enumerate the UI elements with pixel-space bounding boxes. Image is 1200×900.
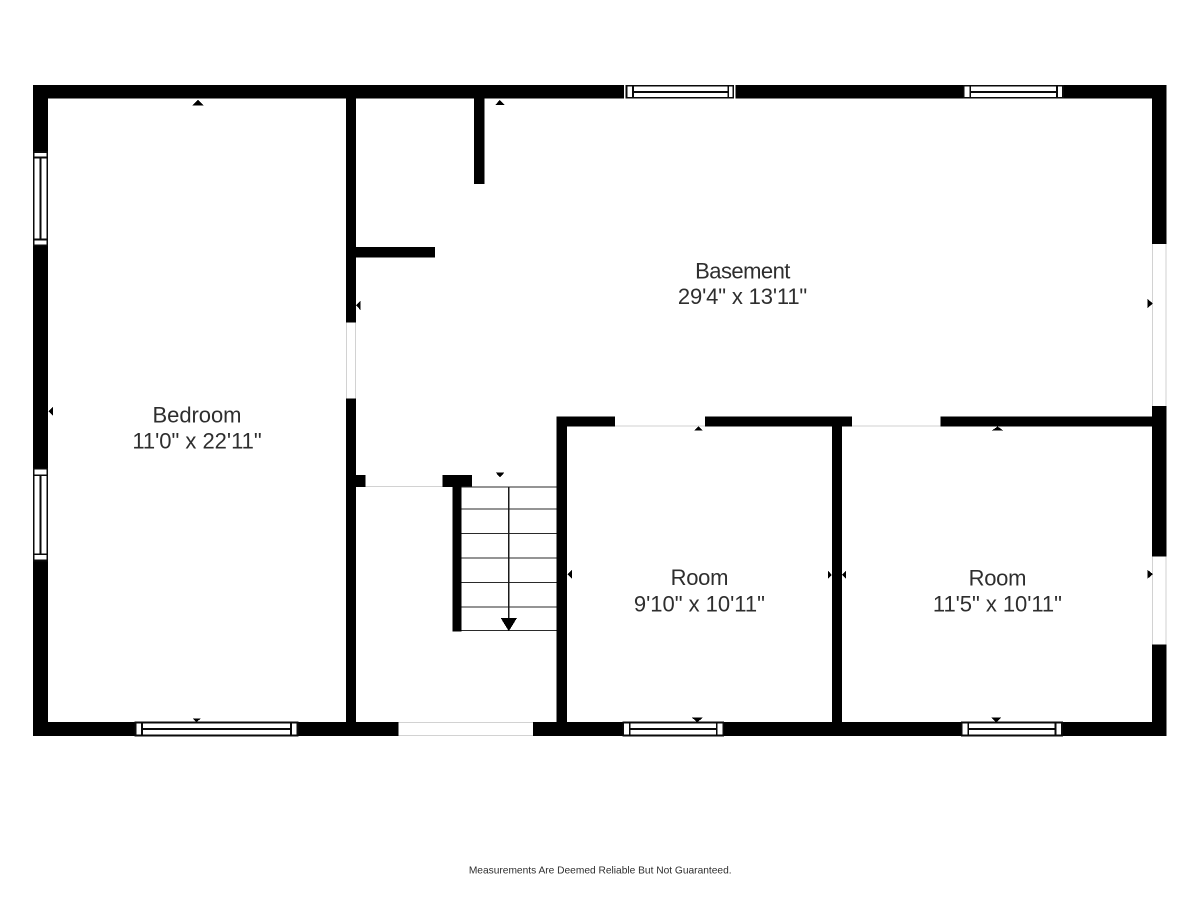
svg-text:Bedroom: Bedroom (153, 402, 242, 427)
svg-text:9'10" x 10'11": 9'10" x 10'11" (634, 591, 765, 616)
svg-text:Room: Room (969, 565, 1027, 590)
svg-text:Room: Room (671, 565, 729, 590)
svg-text:29'4" x 13'11": 29'4" x 13'11" (678, 284, 807, 309)
svg-text:11'5" x 10'11": 11'5" x 10'11" (933, 592, 1062, 617)
svg-text:Basement: Basement (695, 259, 790, 284)
svg-text:11'0" x 22'11": 11'0" x 22'11" (132, 428, 261, 453)
svg-text:Measurements Are Deemed Reliab: Measurements Are Deemed Reliable But Not… (469, 866, 732, 877)
